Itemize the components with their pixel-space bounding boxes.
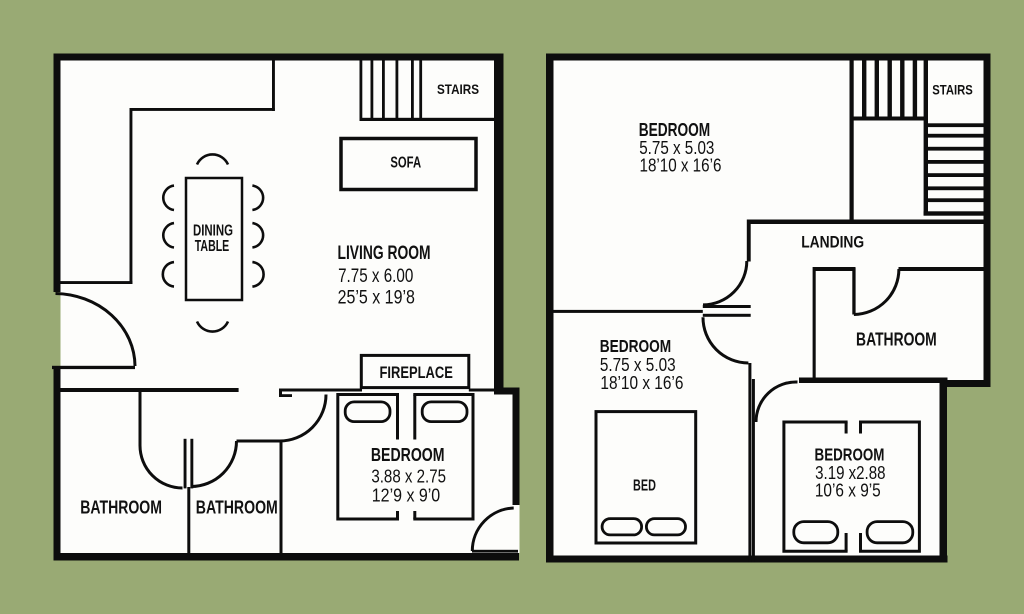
svg-text:BATHROOM: BATHROOM (80, 497, 162, 518)
svg-text:LANDING: LANDING (801, 232, 864, 251)
svg-text:BATHROOM: BATHROOM (196, 497, 278, 518)
svg-text:3.88 x 2.75: 3.88 x 2.75 (371, 467, 446, 487)
svg-text:18’10 x 16’6: 18’10 x 16’6 (600, 373, 683, 393)
svg-text:10’6 x 9’5: 10’6 x 9’5 (815, 480, 881, 500)
svg-text:SOFA: SOFA (390, 155, 421, 172)
svg-text:18’10 x 16’6: 18’10 x 16’6 (640, 155, 722, 175)
svg-text:12’9 x 9’0: 12’9 x 9’0 (372, 486, 440, 506)
svg-text:BEDROOM: BEDROOM (371, 445, 445, 465)
svg-text:BATHROOM: BATHROOM (856, 329, 937, 350)
svg-text:FIREPLACE: FIREPLACE (380, 363, 453, 382)
svg-text:STAIRS: STAIRS (437, 81, 479, 97)
svg-text:TABLE: TABLE (195, 238, 230, 255)
svg-text:STAIRS: STAIRS (932, 81, 973, 97)
svg-text:25’5 x 19’8: 25’5 x 19’8 (338, 288, 415, 309)
svg-text:BEDROOM: BEDROOM (600, 336, 672, 356)
svg-text:BEDROOM: BEDROOM (815, 444, 885, 464)
svg-text:BEDROOM: BEDROOM (639, 120, 711, 140)
svg-text:LIVING ROOM: LIVING ROOM (338, 243, 431, 264)
svg-text:BED: BED (633, 478, 656, 495)
svg-text:7.75 x 6.00: 7.75 x 6.00 (338, 266, 413, 287)
